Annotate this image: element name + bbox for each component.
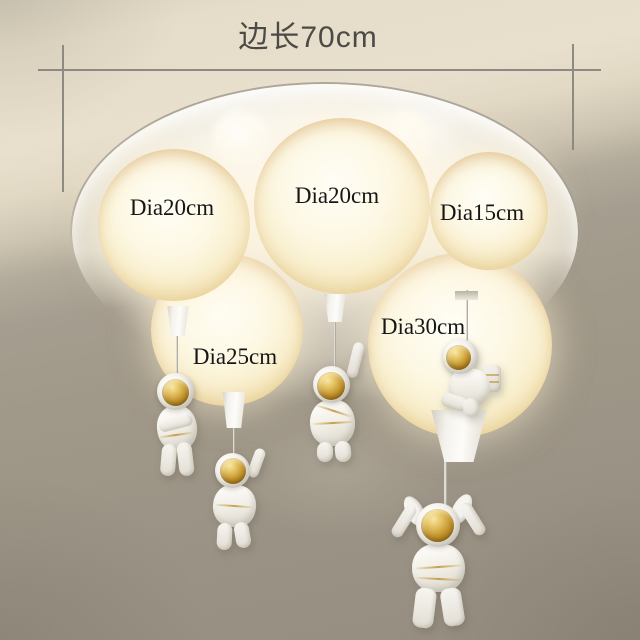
product-photo: Dia20cm Dia20cm Dia15cm Dia25cm Dia30cm … [0,0,640,640]
balloon-label-dia30: Dia30cm [381,314,465,340]
dimension-line [38,69,601,71]
balloon-label-dia15: Dia15cm [440,200,524,226]
astronaut-leg [216,523,232,551]
gold-visor [220,458,246,484]
astronaut-standing [150,372,204,478]
gold-visor [162,379,189,406]
balloon-label-dia20-left: Dia20cm [130,195,214,221]
astronaut-leg [334,440,352,463]
astronaut-leg [176,441,195,477]
astronaut-waving [204,447,268,551]
cord-cap [455,291,478,300]
astronaut-climbing [440,338,502,418]
balloon-dia20-left [98,149,250,301]
astronaut-leg [233,521,252,549]
astronaut-arm-raised [346,341,365,379]
gold-visor [317,372,345,400]
astronaut-leg [439,587,466,628]
astronaut-leg [412,587,438,629]
astronaut-leg [160,443,178,476]
back-globe-glow-left [212,110,270,166]
balloon-label-dia20-center: Dia20cm [295,183,379,209]
dimension-width-label: 边长70cm [238,22,377,54]
gold-visor [446,345,471,370]
astronaut-leg [317,442,334,463]
astronaut-arms-up [397,486,481,630]
dimension-tick-left [62,45,64,192]
gold-visor [421,509,454,542]
astronaut-arm-raised [302,340,368,462]
balloon-label-dia25: Dia25cm [193,344,277,370]
dimension-tick-right [572,44,574,150]
